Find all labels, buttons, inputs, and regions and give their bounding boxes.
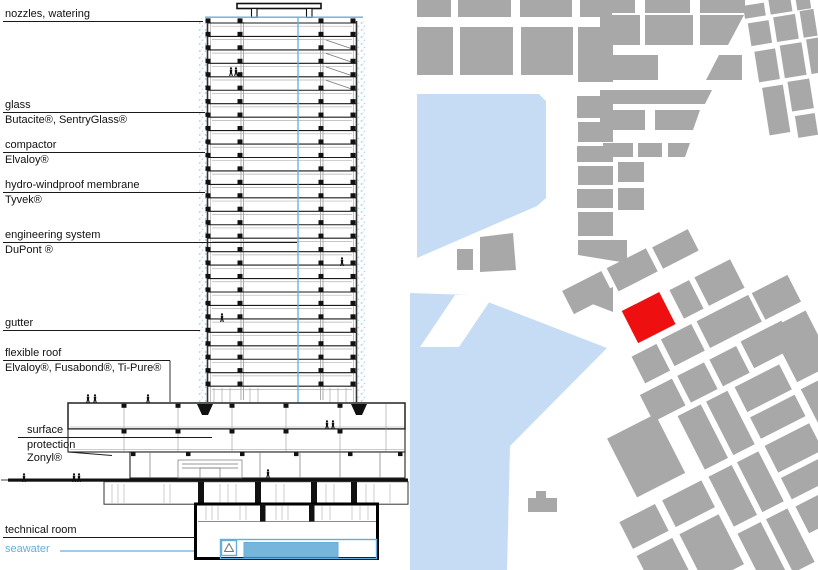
basement <box>104 482 408 559</box>
tower-base-mullions <box>214 388 346 402</box>
label-compactor: compactorElvaloy® <box>3 139 205 166</box>
building-section-drawing <box>0 0 410 570</box>
label-nozzles: nozzles, watering <box>3 8 203 22</box>
label-glass: glassButacite®, SentryGlass® <box>3 99 205 126</box>
label-gutter: gutter <box>3 317 200 331</box>
label-engineering: engineering systemDuPont ® <box>3 229 297 256</box>
label-flexible-roof: flexible roofElvaloy®, Fusabond®, Ti-Pur… <box>3 347 170 374</box>
architecture-board: nozzles, watering glassButacite®, Sentry… <box>0 0 818 570</box>
tower-floors <box>206 18 357 389</box>
recycle-symbol-box <box>222 541 237 556</box>
site-map <box>410 0 818 570</box>
label-surface-protection: surfaceprotectionZonyl® <box>18 424 212 464</box>
label-seawater: seawater <box>3 543 50 555</box>
roof-cap <box>237 4 321 18</box>
label-membrane: hydro-windproof membraneTyvek® <box>3 179 205 206</box>
label-technical-room: technical room <box>3 524 195 538</box>
